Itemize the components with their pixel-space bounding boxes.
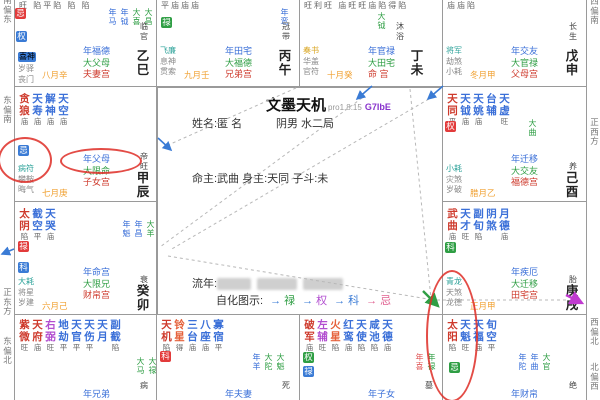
stem-branch-label: 丁未	[410, 50, 424, 77]
flow-star-年魁: 年魁	[121, 220, 132, 238]
palace-geng-xu[interactable]: 武曲庙天才旺副旬陷阴煞月德庙科青龙天煞龙德正月甲年疾厄大迁移田宅宫胎庚戌	[443, 202, 587, 315]
flow-star-大魁: 大魁	[275, 353, 286, 371]
star-左辅: 左辅旺	[316, 319, 329, 352]
legend-权: 权	[316, 295, 327, 307]
flow-star-大羊: 大羊	[145, 220, 156, 238]
flow-star-年禄: 年禄	[426, 353, 437, 371]
god-灾煞: 灾煞	[446, 175, 462, 186]
compass-label-right: 正西方	[588, 118, 600, 147]
palace-name-stack: 年命宫大限兄财帛宫	[83, 267, 110, 302]
palace-ji-you[interactable]: 天同平天钺庙天姚庙台辅天虚旺权大曲小耗灾煞岁破腊月乙年迁移大交友福德宫养己酉	[443, 87, 587, 202]
palace-name-年疾厄: 年疾厄	[511, 267, 538, 279]
sihua-badge-科: 科	[18, 262, 29, 273]
stem-branch-label: 己酉	[565, 172, 579, 199]
yearly-gods: 病符攀鞍晦气	[18, 164, 34, 196]
star-紫微: 紫微旺	[18, 319, 31, 352]
flow-month-label: 十月癸	[327, 69, 353, 81]
clipped-star-brightness: 庙庙陷	[447, 0, 477, 11]
god-飞廉: 飞廉	[160, 46, 176, 57]
legend-禄: 禄	[284, 295, 295, 307]
palace-name-年兄弟: 年兄弟	[83, 389, 110, 400]
sihua-badge-科: 科	[445, 242, 456, 253]
palace-name-夫妻宫: 夫妻宫	[83, 69, 110, 81]
flow-star-markers: 年羊大陀大魁	[251, 353, 286, 371]
yearly-gods: 奏书华盖官符	[303, 46, 319, 78]
palace-xin-hai[interactable]: 太阳陷天魁旺天福庙旬空平忌年陀年曲大官年财帛绝辛亥	[443, 315, 587, 400]
compass-label-left: 南偏东	[1, 0, 14, 25]
star-火星: 火星陷	[329, 319, 342, 352]
flow-star-大陀: 大陀	[263, 353, 274, 371]
palace-name-stack: 年子女	[368, 389, 395, 400]
palace-name-大限兄: 大限兄	[83, 279, 110, 291]
palace-gui-mao[interactable]: 太阴陷截空平天哭庙禄科年魁年昌大羊大耗将星岁建六月己年命宫大限兄财帛宫衰癸卯	[14, 202, 157, 315]
palace-name-大限命: 大限命	[83, 166, 110, 178]
palace-name-父母宫: 父母宫	[511, 69, 538, 81]
changsheng-stage: 长生	[567, 22, 579, 41]
redacted-liunian-value	[217, 278, 349, 290]
god-息神: 息神	[160, 57, 176, 68]
palace-name-兄弟宫: 兄弟宫	[225, 69, 252, 81]
sihua-badge-禄: 禄	[303, 366, 314, 377]
flow-star-年喜: 年喜	[414, 353, 425, 371]
god-将军: 将军	[446, 46, 462, 57]
palace-name-年交友: 年交友	[511, 46, 538, 58]
palace-name-大交友: 大交友	[511, 166, 538, 178]
flow-star-年陀: 年陀	[517, 353, 528, 371]
palace-name-大官禄: 大官禄	[511, 58, 538, 70]
stem-branch-label: 乙巳	[136, 50, 150, 77]
sihua-badge-禄: 禄	[18, 241, 29, 252]
palace-wu-shen[interactable]: 庙庙陷将军劫煞小耗冬月甲年交友大官禄父母宫长生戊申	[443, 0, 587, 87]
star-天空: 天空庙	[57, 93, 70, 126]
compass-label-left: 东偏南	[1, 96, 14, 125]
star-八座: 八座庙	[199, 319, 212, 352]
palace-name-年父母: 年父母	[83, 154, 110, 166]
flow-star-markers: 大马大禄	[135, 357, 157, 375]
stem-branch-label: 癸卯	[136, 285, 150, 312]
liunian-label: 流年:	[192, 278, 217, 290]
god-龙德: 龙德	[446, 298, 462, 309]
legend-忌: 忌	[380, 295, 391, 307]
app-title-row: 文墨天机pro1.8.15G7IbE	[266, 94, 391, 115]
god-小耗: 小耗	[446, 67, 462, 78]
star-地劫: 地劫平	[57, 319, 70, 352]
changsheng-stage: 胎	[567, 275, 579, 285]
god-贯索: 贯索	[160, 67, 176, 78]
flow-month-label: 七月庚	[42, 187, 68, 199]
stem-branch-label: 甲辰	[136, 172, 150, 199]
yearly-gods: 将军劫煞小耗	[446, 46, 462, 78]
star-寡宿: 寡宿平	[212, 319, 225, 352]
star-三台: 三台庙	[186, 319, 199, 352]
god-官符: 官符	[303, 67, 319, 78]
flow-star-markers: 年陀年曲大官	[517, 353, 552, 371]
flow-month-label: 八月辛	[42, 69, 68, 81]
star-天府: 天府庙	[31, 319, 44, 352]
sihua-badge-权: 权	[445, 121, 456, 132]
flow-star-markers: 年喜年禄	[414, 353, 437, 371]
flow-month-label: 冬月甲	[470, 69, 496, 81]
flow-month-label: 六月己	[42, 300, 68, 312]
name-row: 姓名:匿 名	[192, 115, 242, 131]
god-奏书: 奏书	[303, 46, 319, 57]
palace-name-年夫妻: 年夫妻	[225, 389, 252, 400]
palace-name-stack: 年疾厄大迁移田宅宫	[511, 267, 538, 302]
app-version: pro1.8.15	[328, 103, 362, 112]
legend-label: 自化图示:	[216, 295, 263, 307]
name-label: 姓名:	[192, 118, 217, 130]
sihua-badge-忌: 忌	[18, 145, 29, 156]
flow-star-年昌: 年昌	[133, 220, 144, 238]
god-华盖: 华盖	[303, 57, 319, 68]
god-丧门: 丧门	[18, 75, 36, 86]
sihua-badge-忌: 忌	[449, 362, 460, 373]
star-红鸾: 红鸾庙	[342, 319, 355, 352]
flow-star-年钺: 年钺	[119, 8, 130, 26]
star-副旬: 副旬陷	[472, 208, 485, 241]
star-旬空: 旬空平	[485, 319, 498, 352]
flow-month-label: 九月壬	[184, 69, 210, 81]
yearly-gods: 小耗灾煞岁破	[446, 164, 462, 196]
palace-name-大田宅: 大田宅	[368, 58, 395, 70]
god-大耗: 大耗	[18, 277, 34, 288]
palace-name-stack: 年交友大官禄父母宫	[511, 46, 538, 81]
palace-name-子女宫: 子女宫	[83, 177, 110, 189]
yearly-gods: 飞廉息神贯索	[160, 46, 176, 78]
yearly-gods: 青龙天煞龙德	[446, 277, 462, 309]
flow-star-年曲: 年曲	[529, 353, 540, 371]
stem-branch-label: 戊申	[565, 50, 579, 77]
changsheng-stage: 冠带	[280, 22, 292, 41]
star-破军: 破军庙	[303, 319, 316, 352]
star-天机: 天机陷	[160, 319, 173, 352]
star-阴煞: 阴煞	[485, 208, 498, 241]
flow-star-大禄: 大禄	[147, 357, 157, 375]
sihua-badge-禄: 禄	[161, 17, 172, 28]
changsheng-stage: 墓	[423, 381, 435, 391]
flow-star-markers: 大曲	[527, 119, 538, 137]
palace-ding-wei[interactable]: 旺利旺 庙旺旺庙陷得陷大钺奏书华盖官符十月癸年官禄大田宅命 宫沐浴丁未	[300, 0, 443, 87]
star-天使: 天使陷	[355, 319, 368, 352]
flow-star-markers: 大钺	[376, 12, 387, 30]
star-截空: 截空平	[31, 208, 44, 241]
palace-name-年子女: 年子女	[368, 389, 395, 400]
self-transform-legend: 自化图示:→禄→权→科→忌	[216, 292, 391, 308]
star-天钺: 天钺庙	[459, 93, 472, 126]
clipped-star-brightness: 旺利旺 庙旺旺庙陷得陷	[304, 0, 408, 11]
god-将星: 将星	[18, 288, 34, 299]
yearly-gods: 喜神岁驿丧门	[18, 46, 36, 85]
palace-name-stack: 年迁移大交友福德宫	[511, 154, 538, 189]
palace-jia-chen[interactable]: 贪狼庙天寿庙解神庙天空庙忌病符攀鞍晦气七月庚年父母大限命子女宫帝旺甲辰	[14, 87, 157, 202]
god-劫煞: 劫煞	[446, 57, 462, 68]
palace-bing-wu[interactable]: 平庙庙庙禄年鸾飞廉息神贯索九月壬年田宅大福德兄弟宫冠带丙午	[157, 0, 300, 87]
palace-name-命 宫: 命 宫	[368, 69, 395, 81]
star-解神: 解神庙	[44, 93, 57, 126]
flow-star-年羊: 年羊	[251, 353, 262, 371]
compass-label-right: 西偏北	[588, 318, 600, 347]
star-天官: 天官平	[70, 319, 83, 352]
god-晦气: 晦气	[18, 185, 34, 196]
palace-name-福德宫: 福德宫	[511, 177, 538, 189]
star-天月: 天月	[96, 319, 109, 352]
compass-label-left: 正东方	[1, 288, 14, 317]
flow-star-大钺: 大钺	[376, 12, 387, 30]
liunian-row: 流年:	[192, 275, 349, 291]
changsheng-stage: 沐浴	[394, 22, 406, 41]
palace-name-大福德: 大福德	[225, 58, 252, 70]
changsheng-stage: 病	[138, 381, 150, 391]
star-天姚: 天姚庙	[472, 93, 485, 126]
app-code: G7IbE	[365, 102, 391, 112]
palace-name-年迁移: 年迁移	[511, 154, 538, 166]
compass-label-right: 北偏西	[588, 363, 600, 392]
god-天煞: 天煞	[446, 288, 462, 299]
palace-name-大父母: 大父母	[83, 58, 110, 70]
star-副截: 副截陷	[109, 319, 122, 352]
flow-star-大曲: 大曲	[527, 119, 538, 137]
star-天德: 天德庙	[381, 319, 394, 352]
star-贪狼: 贪狼庙	[18, 93, 31, 126]
flow-month-label: 腊月乙	[470, 187, 496, 199]
gender-and-bureau: 阴男 水二局	[276, 115, 334, 131]
app-title: 文墨天机	[266, 97, 326, 114]
star-天福: 天福庙	[472, 319, 485, 352]
god-喜神: 喜神	[18, 52, 36, 62]
changsheng-stage: 帝旺	[138, 152, 150, 171]
star-天才: 天才旺	[459, 208, 472, 241]
palace-name-stack: 年福德大父母夫妻宫	[83, 46, 110, 81]
palace-name-大迁移: 大迁移	[511, 279, 538, 291]
god-攀鞍: 攀鞍	[18, 175, 34, 186]
palace-ren-yin[interactable]: 紫微旺天府庙右弼旺地劫平天官平天伤平天月副截陷大马大禄年兄弟病壬寅	[14, 315, 157, 400]
god-岁建: 岁建	[18, 298, 34, 309]
life-body-masters: 命主:武曲 身主:天同 子斗:未	[192, 170, 328, 186]
palace-name-年福德: 年福德	[83, 46, 110, 58]
changsheng-stage: 临官	[138, 22, 150, 41]
palace-name-stack: 年兄弟	[83, 389, 110, 400]
palace-name-stack: 年官禄大田宅命 宫	[368, 46, 395, 81]
star-咸池: 咸池陷	[368, 319, 381, 352]
palace-name-年官禄: 年官禄	[368, 46, 395, 58]
star-天哭: 天哭庙	[44, 208, 57, 241]
clipped-star-brightness: 平庙庙庙	[161, 0, 201, 11]
palace-name-stack: 年父母大限命子女宫	[83, 154, 110, 189]
changsheng-stage: 养	[567, 162, 579, 172]
changsheng-stage: 衰	[138, 275, 150, 285]
flow-star-markers: 年魁年昌大羊	[121, 220, 156, 238]
star-天伤: 天伤平	[83, 319, 96, 352]
star-月德: 月德庙	[498, 208, 511, 241]
stem-branch-label: 庚戌	[565, 285, 579, 312]
god-病符: 病符	[18, 164, 34, 175]
star-右弼: 右弼旺	[44, 319, 57, 352]
legend-items: →禄→权→科→忌	[263, 295, 391, 307]
yearly-gods: 大耗将星岁建	[18, 277, 34, 309]
palace-name-年田宅: 年田宅	[225, 46, 252, 58]
name-value: 匿 名	[217, 118, 242, 130]
sihua-badge-权: 权	[16, 31, 27, 42]
compass-label-right: 西偏南	[588, 0, 600, 26]
sihua-badge-忌: 忌	[15, 8, 26, 19]
stem-branch-label: 丙午	[278, 50, 292, 77]
star-铃星: 铃星得	[173, 319, 186, 352]
god-青龙: 青龙	[446, 277, 462, 288]
changsheng-stage: 绝	[567, 381, 579, 391]
legend-科: 科	[348, 295, 359, 307]
flow-month-label: 正月甲	[470, 300, 496, 312]
god-岁驿: 岁驿	[18, 64, 36, 75]
flow-star-大官: 大官	[541, 353, 552, 371]
palace-name-年命宫: 年命宫	[83, 267, 110, 279]
star-太阳: 太阳陷	[446, 319, 459, 352]
sihua-badge-科: 科	[160, 351, 171, 362]
palace-yi-si[interactable]: 旺 陷平陷 陷 陷忌权年马年钺大喜大昌喜神岁驿丧门八月辛年福德大父母夫妻宫临官乙…	[14, 0, 157, 87]
clipped-star-brightness: 旺 陷平陷 陷 陷	[19, 0, 92, 11]
star-武曲: 武曲庙	[446, 208, 459, 241]
star-太阴: 太阴陷	[18, 208, 31, 241]
palace-name-田宅宫: 田宅宫	[511, 290, 538, 302]
god-岁破: 岁破	[446, 185, 462, 196]
palace-name-财帛宫: 财帛宫	[83, 290, 110, 302]
star-天魁: 天魁旺	[459, 319, 472, 352]
palace-name-stack: 年田宅大福德兄弟宫	[225, 46, 252, 81]
palace-ren-zi[interactable]: 破军庙左辅旺火星陷红鸾庙天使陷咸池陷天德庙权禄年喜年禄年子女墓壬子	[300, 315, 443, 400]
palace-name-stack: 年夫妻	[225, 389, 252, 400]
star-天寿: 天寿庙	[31, 93, 44, 126]
sihua-badge-权: 权	[303, 352, 314, 363]
compass-label-left: 东偏北	[1, 337, 14, 366]
palace-name-stack: 年财帛	[511, 389, 538, 400]
god-小耗: 小耗	[446, 164, 462, 175]
center-info-panel: 文墨天机pro1.8.15G7IbE 姓名:匿 名 阴男 水二局 命主:武曲 身…	[157, 87, 443, 315]
palace-gui-chou[interactable]: 天机陷铃星得三台庙八座庙寡宿平科年羊大陀大魁年夫妻死癸丑	[157, 315, 300, 400]
star-天虚: 天虚旺	[498, 93, 511, 126]
changsheng-stage: 死	[280, 381, 292, 391]
ziwei-chart: 旺 陷平陷 陷 陷忌权年马年钺大喜大昌喜神岁驿丧门八月辛年福德大父母夫妻宫临官乙…	[0, 0, 600, 400]
star-台辅: 台辅	[485, 93, 498, 126]
palace-name-年财帛: 年财帛	[511, 389, 538, 400]
flow-star-年马: 年马	[107, 8, 118, 26]
flow-star-大马: 大马	[135, 357, 146, 375]
